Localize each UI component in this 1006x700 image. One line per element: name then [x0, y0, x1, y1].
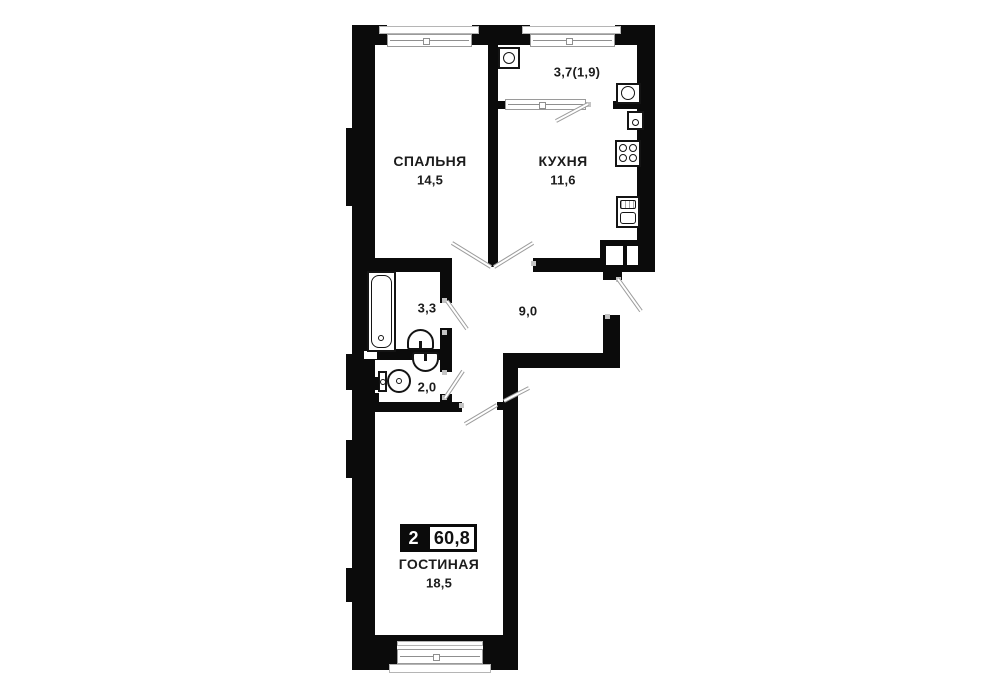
bedroom-area: 14,5	[417, 173, 443, 188]
bedroom-label: СПАЛЬНЯ	[393, 153, 466, 169]
bathroom-area: 3,3	[418, 301, 437, 316]
kitchen-label: КУХНЯ	[538, 153, 587, 169]
total-area-badge: 60,8	[427, 524, 477, 552]
bathroom-door-swing	[447, 301, 467, 329]
kitchen-door-swing	[494, 243, 533, 267]
door-swing-overlay	[0, 0, 1006, 700]
hallway-area: 9,0	[519, 304, 538, 319]
toilet-door-swing	[445, 371, 463, 398]
bedroom-door-swing	[452, 243, 491, 267]
kitchen-area: 11,6	[550, 173, 575, 188]
living-room-door-swing	[465, 388, 529, 424]
balcony-area: 3,7(1,9)	[554, 65, 600, 80]
toilet-area: 2,0	[418, 380, 437, 395]
living-room-area: 18,5	[426, 576, 452, 591]
entrance-door-swing	[618, 279, 641, 311]
balcony-door-swing	[556, 104, 588, 121]
floor-plan: СПАЛЬНЯ 14,5 КУХНЯ 11,6 3,7(1,9) 3,3 9,0…	[0, 0, 1006, 700]
living-room-label: ГОСТИНАЯ	[399, 556, 480, 572]
room-count-badge: 2	[400, 524, 427, 552]
